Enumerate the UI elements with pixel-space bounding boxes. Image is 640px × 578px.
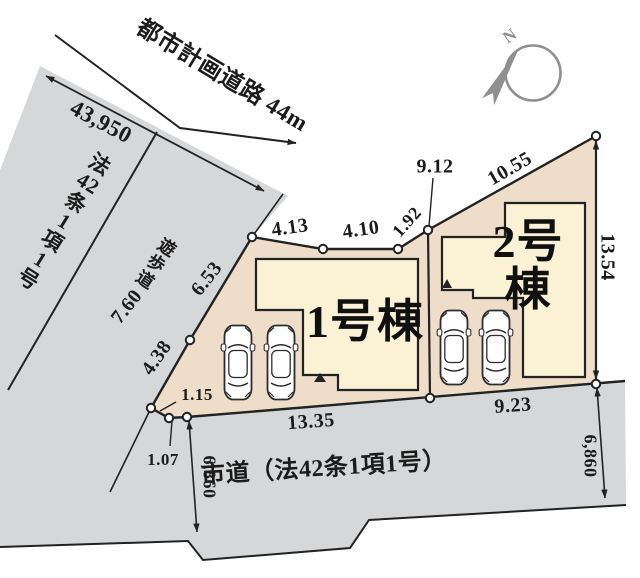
car-icon [437,311,471,385]
leader-dim-912 [429,178,433,226]
compass [482,45,561,106]
dim-lot1-south: 13.35 [287,410,336,434]
dim-division-line: 9.12 [417,157,454,178]
car-icon [479,311,513,385]
dim-corner-b: 1.07 [147,451,179,469]
building-2-label: 2号棟 [472,218,584,314]
car-icon [264,326,298,400]
building-1-label: 1号棟 [306,298,424,346]
dim-lot2-east: 13.54 [597,233,618,281]
car-icon [221,326,255,400]
dim-road-width-right: 6,860 [581,435,600,478]
dim-corner-a: 1.15 [181,386,213,404]
compass-circle [506,46,561,101]
site-plan-drawing: 都市計画道路 44m 43,950 法 42 条 1 項 1 号 遊 歩 道 7… [0,0,640,578]
dim-lot2-south: 9.23 [494,394,532,417]
